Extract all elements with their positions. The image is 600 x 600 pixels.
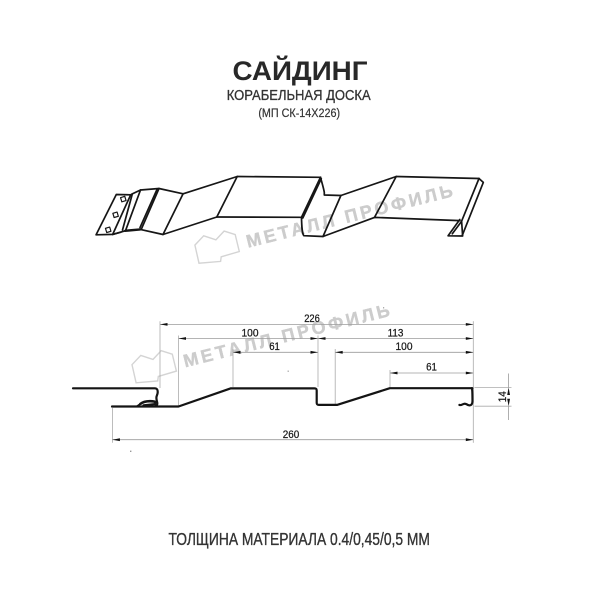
svg-text:100: 100 — [396, 341, 413, 353]
svg-text:61: 61 — [426, 362, 437, 374]
svg-text:100: 100 — [242, 327, 259, 339]
svg-text:14: 14 — [497, 391, 509, 402]
svg-text:113: 113 — [388, 327, 404, 339]
svg-text:ТОЛЩИНА МАТЕРИАЛА 0.4/0,45/0,5: ТОЛЩИНА МАТЕРИАЛА 0.4/0,45/0,5 ММ — [168, 529, 430, 549]
svg-text:КОРАБЕЛЬНАЯ ДОСКА: КОРАБЕЛЬНАЯ ДОСКА — [227, 88, 371, 104]
svg-text:61: 61 — [269, 341, 280, 353]
svg-text:226: 226 — [304, 313, 320, 325]
svg-text:САЙДИНГ: САЙДИНГ — [233, 55, 368, 86]
svg-text:(МП СК-14Х226): (МП СК-14Х226) — [258, 106, 340, 120]
svg-text:260: 260 — [283, 429, 300, 441]
